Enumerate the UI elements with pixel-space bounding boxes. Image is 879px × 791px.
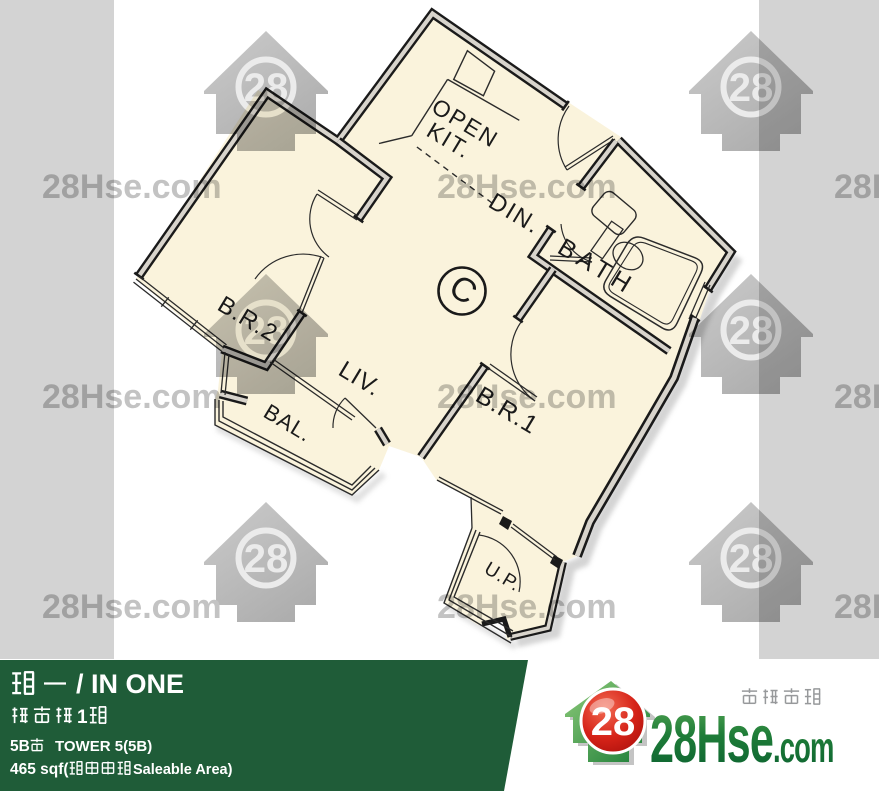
svg-text:28Hse.com: 28Hse.com	[437, 168, 617, 206]
svg-text:28Hse.com: 28Hse.com	[42, 588, 222, 626]
svg-text:TOWER 5(5B): TOWER 5(5B)	[55, 738, 152, 755]
svg-text:465 sqf(: 465 sqf(	[10, 761, 69, 778]
svg-text:28Hse.com: 28Hse.com	[437, 588, 617, 626]
svg-text:28Hse.com: 28Hse.com	[42, 168, 222, 206]
svg-text:1: 1	[77, 707, 88, 728]
svg-text:28Hse.com: 28Hse.com	[42, 378, 222, 416]
svg-text:28Hse.com: 28Hse.com	[437, 378, 617, 416]
svg-text:28Hse.com: 28Hse.com	[834, 168, 879, 206]
svg-text:28Hse.com: 28Hse.com	[834, 378, 879, 416]
svg-text:/ IN ONE: / IN ONE	[76, 669, 184, 699]
svg-text:28Hse.com: 28Hse.com	[834, 588, 879, 626]
svg-text:Saleable Area): Saleable Area)	[133, 762, 233, 778]
svg-text:28Hse.com: 28Hse.com	[650, 701, 834, 776]
svg-text:5B: 5B	[10, 738, 30, 755]
